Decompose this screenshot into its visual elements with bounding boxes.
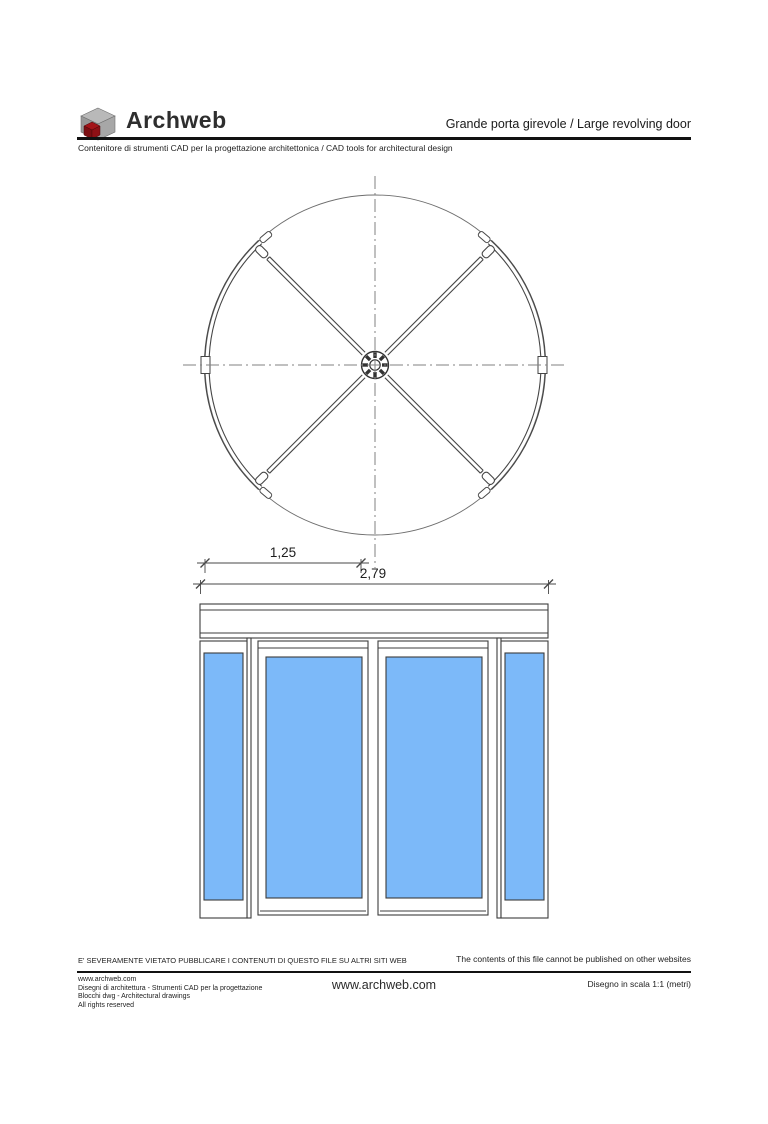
elevation-mullion-right xyxy=(497,638,501,918)
dimension-leaf-label: 1,25 xyxy=(270,545,296,560)
footer-rule xyxy=(77,971,691,973)
dimension-total: 2,79 xyxy=(193,566,556,594)
drawing-sheet: Archweb Grande porta girevole / Large re… xyxy=(0,0,768,1124)
elevation-side-panel-left xyxy=(200,641,247,918)
credit-line: Blocchi dwg - Architectural drawings xyxy=(78,993,262,1002)
elevation-door-left xyxy=(258,641,368,915)
credit-line: All rights reserved xyxy=(78,1002,262,1011)
footer-notice-english: The contents of this file cannot be publ… xyxy=(456,954,691,964)
elevation-transom xyxy=(200,604,548,638)
plan-view xyxy=(183,176,568,568)
door-wing xyxy=(384,374,496,486)
elevation-view xyxy=(200,604,548,918)
footer-notice-italian: E' SEVERAMENTE VIETATO PUBBLICARE I CONT… xyxy=(78,956,407,965)
elevation-mullion-left xyxy=(247,638,251,918)
glass-pane xyxy=(505,653,544,900)
footer-scale-note: Disegno in scala 1:1 (metri) xyxy=(588,979,691,989)
door-wing xyxy=(254,374,366,486)
glass-pane xyxy=(204,653,243,900)
plan-centerlines xyxy=(183,176,568,568)
glass-pane xyxy=(266,657,362,898)
dimension-total-label: 2,79 xyxy=(360,566,386,581)
dimension-leaf: 1,25 xyxy=(197,545,369,573)
elevation-door-right xyxy=(378,641,488,915)
elevation-side-panel-right xyxy=(501,641,548,918)
door-wing xyxy=(254,244,366,356)
glass-pane xyxy=(386,657,482,898)
door-wing xyxy=(384,244,496,356)
